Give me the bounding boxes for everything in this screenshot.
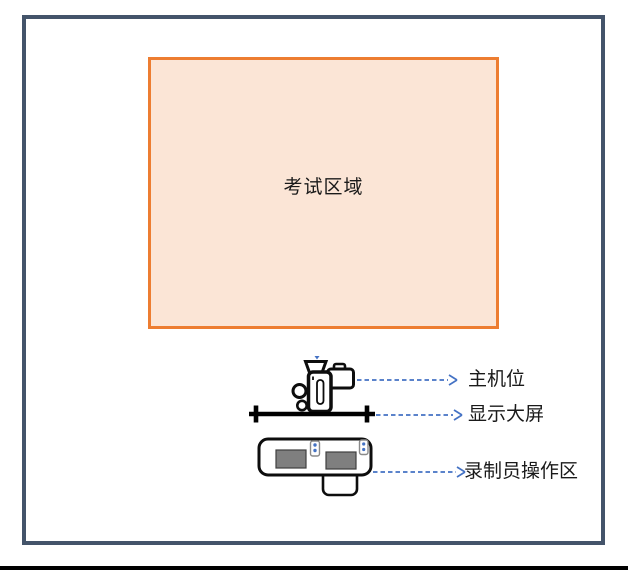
display-screen-shape [246, 404, 378, 424]
annotation-label-operator-area: 录制员操作区 [464, 462, 578, 482]
device-icon [360, 440, 369, 455]
exam-area-label: 考试区域 [283, 172, 363, 199]
dashed-arrow-operator-area [372, 463, 466, 481]
exam-room-layout-diagram: 考试区域 [0, 0, 628, 572]
operator-desk-shape [257, 435, 375, 499]
exam-area-region: 考试区域 [148, 57, 499, 329]
annotation-label-main-camera: 主机位 [468, 370, 525, 390]
device-icon [311, 441, 320, 456]
monitor-icon [276, 450, 306, 468]
camera-reel-large [293, 385, 306, 398]
dashed-arrow-display-screen [375, 406, 463, 424]
bottom-divider-line [0, 566, 628, 570]
annotation-label-display-screen: 显示大屏 [468, 405, 544, 425]
monitor-icon [326, 452, 356, 469]
dashed-arrow-main-camera [356, 371, 458, 389]
tiny-pointer-icon [315, 356, 320, 360]
